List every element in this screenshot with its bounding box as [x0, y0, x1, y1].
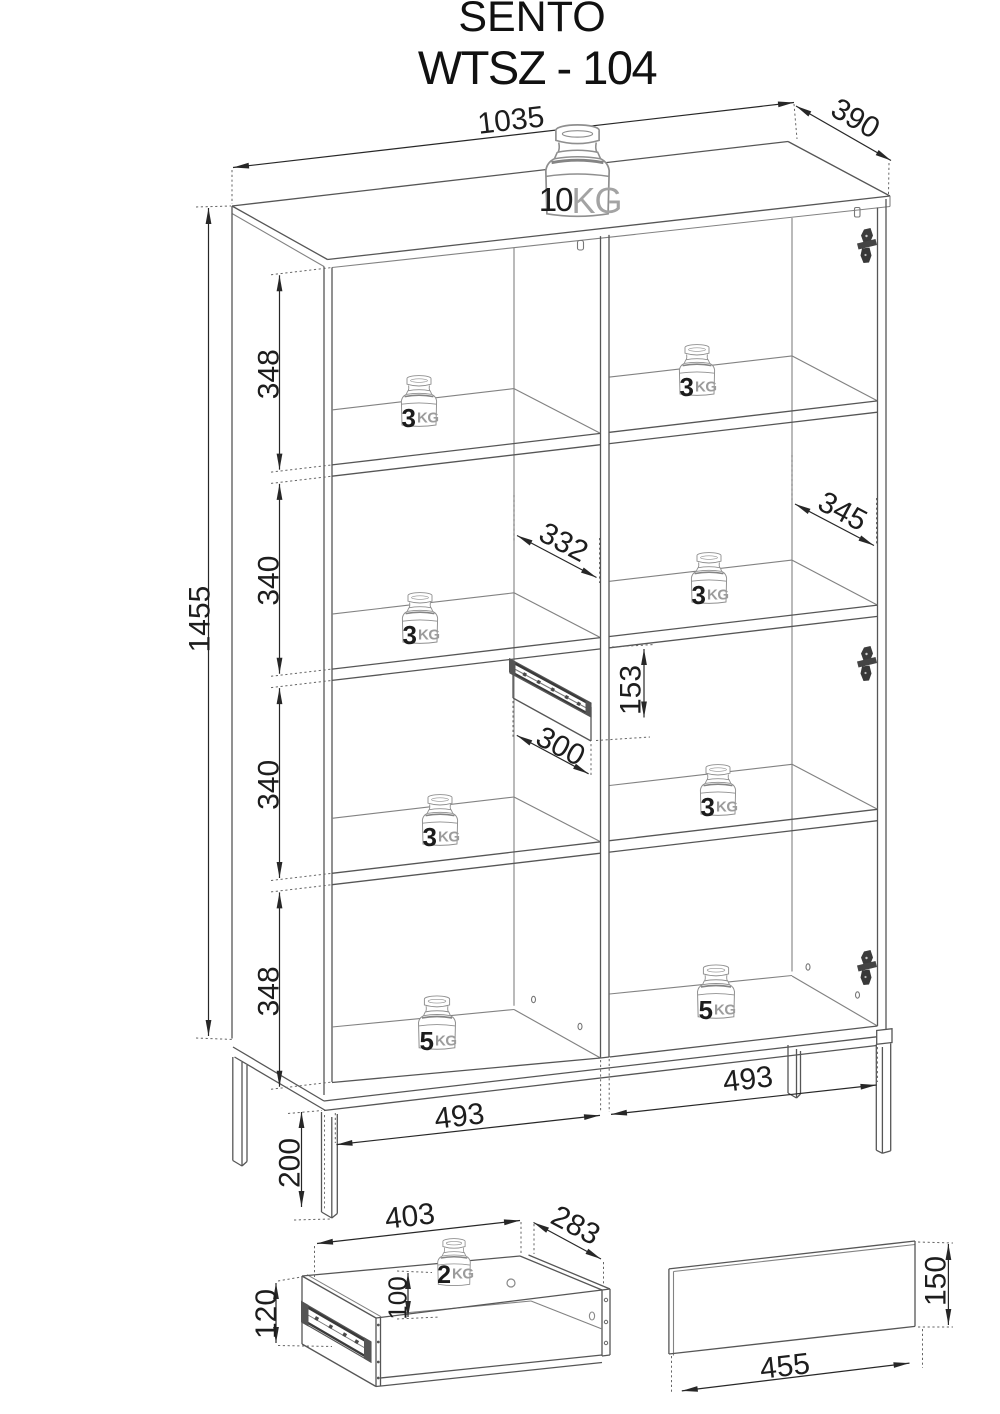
svg-text:3: 3	[692, 580, 706, 610]
svg-text:100: 100	[383, 1276, 413, 1319]
svg-text:5: 5	[420, 1026, 434, 1056]
svg-text:493: 493	[721, 1060, 775, 1099]
svg-text:3: 3	[402, 403, 416, 433]
svg-text:493: 493	[433, 1097, 487, 1136]
svg-text:1455: 1455	[184, 586, 217, 653]
svg-text:3: 3	[701, 792, 715, 822]
svg-text:KG: KG	[452, 1266, 474, 1283]
svg-text:348: 348	[253, 349, 286, 399]
svg-text:3: 3	[423, 822, 437, 852]
svg-text:3: 3	[403, 620, 417, 650]
svg-text:200: 200	[274, 1138, 307, 1188]
svg-text:KG: KG	[438, 829, 460, 846]
svg-text:455: 455	[758, 1347, 812, 1386]
svg-text:KG: KG	[716, 799, 738, 816]
svg-text:5: 5	[699, 995, 713, 1025]
svg-text:340: 340	[253, 760, 286, 810]
svg-text:120: 120	[250, 1289, 283, 1339]
svg-text:KG: KG	[417, 410, 439, 427]
svg-text:3: 3	[680, 372, 694, 402]
svg-text:KG: KG	[714, 1002, 736, 1019]
svg-text:150: 150	[920, 1256, 953, 1306]
svg-text:340: 340	[253, 556, 286, 606]
svg-text:WTSZ - 104: WTSZ - 104	[418, 41, 657, 94]
svg-text:153: 153	[615, 665, 648, 715]
svg-text:2: 2	[437, 1261, 451, 1289]
svg-text:KG: KG	[572, 180, 622, 221]
svg-text:KG: KG	[695, 379, 717, 396]
svg-text:403: 403	[383, 1197, 437, 1236]
svg-text:KG: KG	[435, 1033, 457, 1050]
svg-text:KG: KG	[418, 627, 440, 644]
svg-text:10: 10	[539, 181, 573, 218]
svg-text:KG: KG	[707, 587, 729, 604]
svg-text:348: 348	[253, 966, 286, 1016]
svg-text:SENTO: SENTO	[458, 0, 605, 41]
